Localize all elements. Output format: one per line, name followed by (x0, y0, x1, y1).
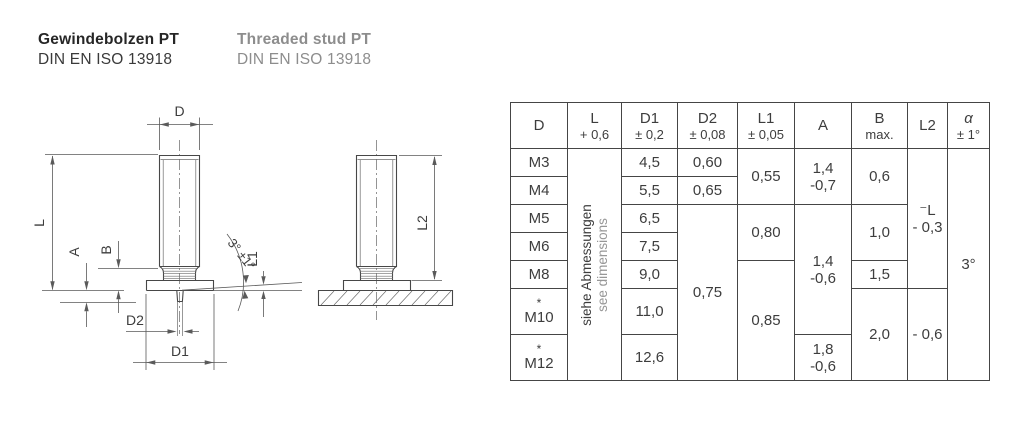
cell-m8-d: M8 (511, 261, 568, 289)
cell-m8-b: 1,5 (852, 261, 908, 289)
cell-m10m12-l2: - 0,6 (908, 289, 948, 381)
cell-m6-d: M6 (511, 233, 568, 261)
table-row-m3: M3 siehe Abmessungen see dimensions 4,5 … (511, 149, 990, 177)
cell-m5m10-a: 1,4-0,6 (795, 205, 852, 335)
col-header-l2: L2 (908, 103, 948, 149)
cell-m12-d1: 12,6 (622, 335, 678, 381)
cell-m5m12-d2: 0,75 (678, 205, 738, 381)
cell-m8-d1: 9,0 (622, 261, 678, 289)
standard-english: DIN EN ISO 13918 (237, 50, 371, 70)
cell-m3m8-l2: ⁻L- 0,3 (908, 149, 948, 289)
dim-label-d1: D1 (171, 343, 189, 359)
dimensions-table: D L+ 0,6 D1± 0,2 D2± 0,08 L1± 0,05 A Bma… (510, 102, 990, 381)
cell-m5-d: M5 (511, 205, 568, 233)
col-header-a: A (795, 103, 852, 149)
cell-m10m12-b: 2,0 (852, 289, 908, 381)
footnote-star: * (511, 343, 567, 355)
dim-label-l2: L2 (414, 215, 430, 231)
cell-m3m4-l1: 0,55 (738, 149, 795, 205)
dim-label-b: B (98, 245, 114, 254)
page-title-english: Threaded stud PT (237, 30, 371, 50)
cell-m3m4-a: 1,4-0,7 (795, 149, 852, 205)
cell-m8m12-l1: 0,85 (738, 261, 795, 381)
base-plate (319, 291, 453, 306)
page-title-german: Gewindebolzen PT (38, 30, 179, 50)
cell-m12-d: * M12 (511, 335, 568, 381)
dim-label-l1: L1 (244, 251, 260, 267)
col-header-l1: L1± 0,05 (738, 103, 795, 149)
cell-m3-d2: 0,60 (678, 149, 738, 177)
dim-label-d: D (174, 103, 184, 119)
cell-m4-d1: 5,5 (622, 177, 678, 205)
cell-m6-d1: 7,5 (622, 233, 678, 261)
col-header-b: Bmax. (852, 103, 908, 149)
cell-all-alpha: 3° (948, 149, 990, 381)
footnote-star: * (511, 297, 567, 309)
front-view: D L A B D2 D1 3° ±1° (31, 103, 302, 370)
dim-label-l: L (31, 219, 47, 227)
standard-german: DIN EN ISO 13918 (38, 50, 179, 70)
table-header-row: D L+ 0,6 D1± 0,2 D2± 0,08 L1± 0,05 A Bma… (511, 103, 990, 149)
size-note-cell: siehe Abmessungen see dimensions (568, 149, 622, 381)
col-header-alpha: α± 1° (948, 103, 990, 149)
title-block-english: Threaded stud PT DIN EN ISO 13918 (237, 30, 371, 70)
col-header-d1: D1± 0,2 (622, 103, 678, 149)
col-header-d: D (511, 103, 568, 149)
dim-label-a: A (66, 247, 82, 257)
technical-drawing: D L A B D2 D1 3° ±1° (20, 95, 480, 405)
title-block-german: Gewindebolzen PT DIN EN ISO 13918 (38, 30, 179, 70)
cell-m5-d1: 6,5 (622, 205, 678, 233)
cell-m4-d2: 0,65 (678, 177, 738, 205)
hatching (321, 291, 451, 305)
page: Gewindebolzen PT DIN EN ISO 13918 Thread… (0, 0, 1024, 438)
col-header-d2: D2± 0,08 (678, 103, 738, 149)
cell-m5m6-l1: 0,80 (738, 205, 795, 261)
side-view: L2 (319, 140, 453, 320)
cell-m12-a: 1,8-0,6 (795, 335, 852, 381)
cell-m4-d: M4 (511, 177, 568, 205)
cell-m3-d: M3 (511, 149, 568, 177)
cell-m3m4-b: 0,6 (852, 149, 908, 205)
dim-label-d2: D2 (126, 312, 144, 328)
cell-m10-d1: 11,0 (622, 289, 678, 335)
cell-m5m6-b: 1,0 (852, 205, 908, 261)
cell-m3-d1: 4,5 (622, 149, 678, 177)
cell-m10-d: * M10 (511, 289, 568, 335)
size-note: siehe Abmessungen see dimensions (579, 204, 611, 326)
col-header-l: L+ 0,6 (568, 103, 622, 149)
